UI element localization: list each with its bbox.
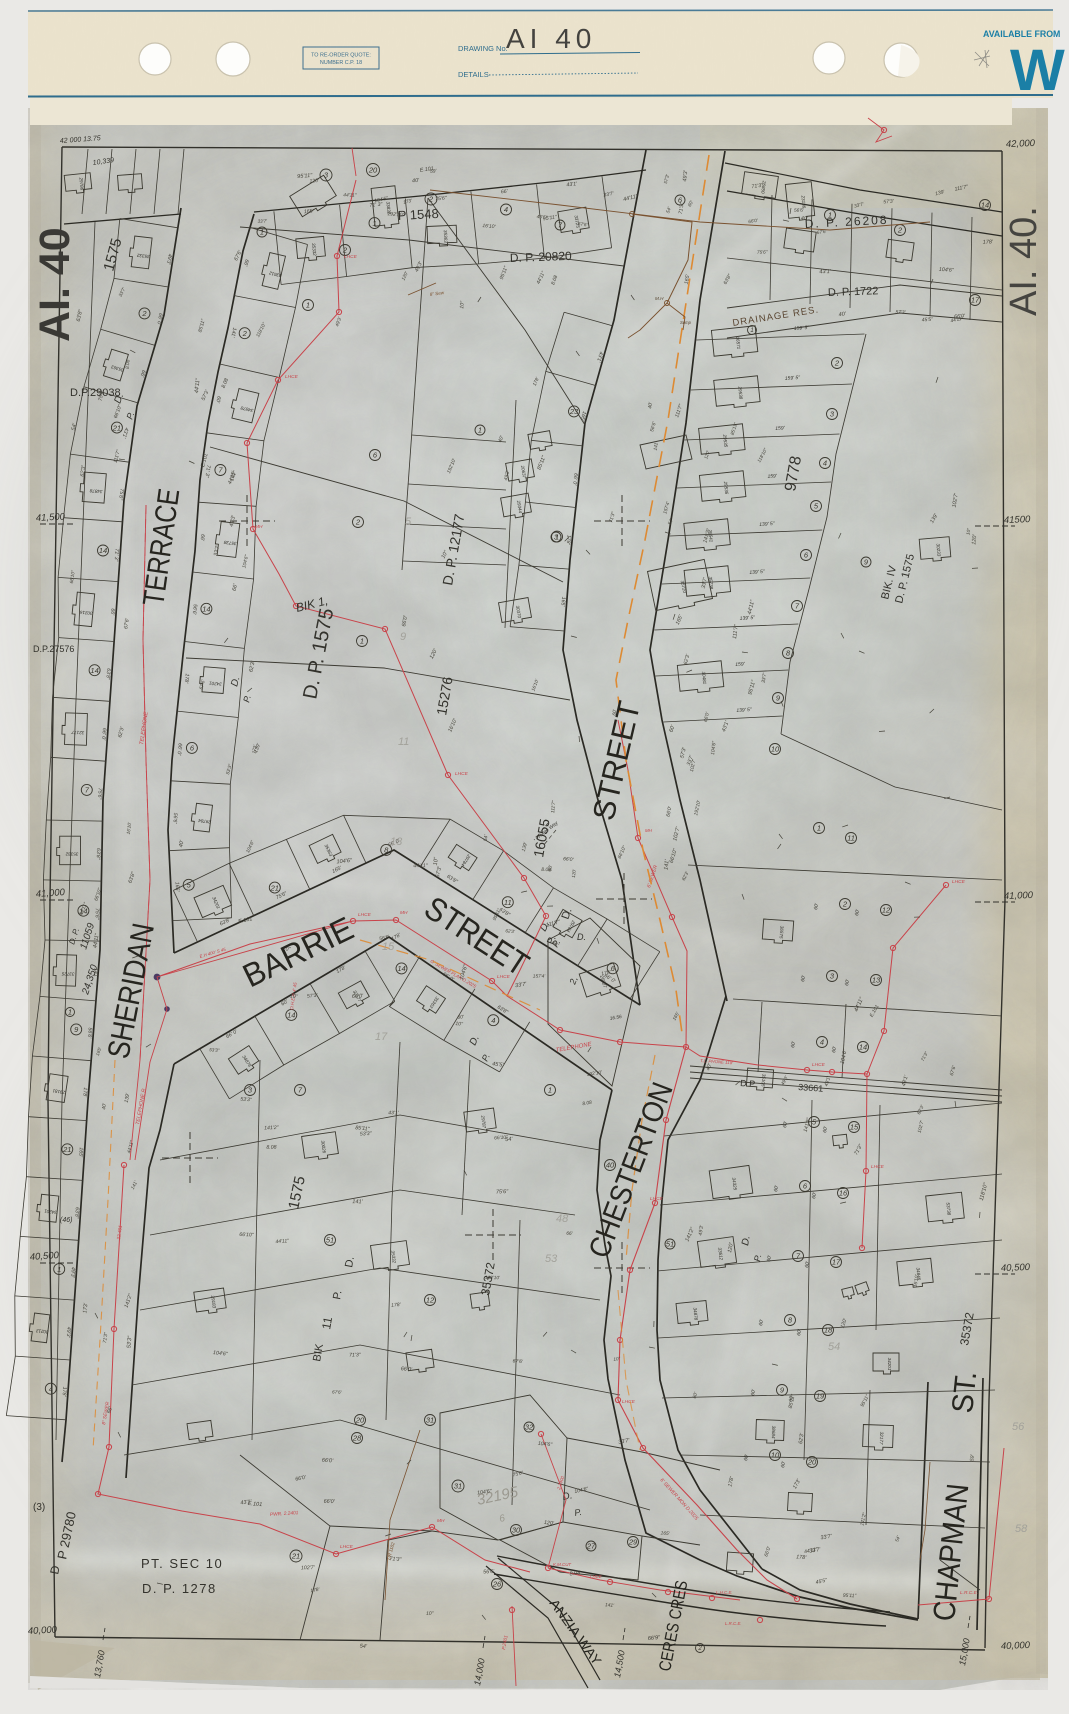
svg-text:MH: MH bbox=[437, 1518, 445, 1524]
svg-text:43'1': 43'1' bbox=[388, 1110, 399, 1116]
svg-text:28: 28 bbox=[352, 1434, 362, 1443]
svg-text:54: 54 bbox=[828, 1341, 840, 1353]
svg-text:21: 21 bbox=[291, 1552, 300, 1561]
svg-text:38684: 38684 bbox=[771, 1426, 776, 1439]
svg-text:LHCE: LHCE bbox=[812, 1062, 826, 1068]
svg-text:AI 40: AI 40 bbox=[506, 23, 596, 54]
svg-text:14: 14 bbox=[859, 1043, 867, 1052]
svg-text:AI. 40.: AI. 40. bbox=[1003, 206, 1045, 316]
svg-text:10": 10" bbox=[613, 1356, 621, 1362]
svg-text:30: 30 bbox=[512, 1526, 521, 1535]
svg-text:75'6": 75'6" bbox=[94, 908, 100, 921]
svg-text:1: 1 bbox=[260, 228, 264, 237]
svg-text:LHCE: LHCE bbox=[650, 1196, 664, 1202]
svg-text:P 1548: P 1548 bbox=[397, 206, 439, 223]
svg-text:10": 10" bbox=[426, 1611, 434, 1617]
svg-text:MH: MH bbox=[255, 524, 263, 530]
svg-text:1: 1 bbox=[306, 301, 310, 310]
svg-text:75'6": 75'6" bbox=[496, 1189, 509, 1195]
svg-text:54': 54' bbox=[359, 1644, 368, 1651]
svg-text:11: 11 bbox=[504, 898, 512, 907]
svg-text:71'3": 71'3" bbox=[349, 1352, 362, 1358]
svg-text:159': 159' bbox=[735, 661, 746, 668]
svg-text:157'4': 157'4' bbox=[533, 974, 547, 980]
svg-text:95'11": 95'11" bbox=[843, 1593, 857, 1599]
svg-text:L.R.C.E.: L.R.C.E. bbox=[725, 1621, 742, 1626]
svg-text:LHCE: LHCE bbox=[344, 254, 358, 260]
svg-text:D.: D. bbox=[343, 1256, 357, 1269]
svg-text:16: 16 bbox=[839, 1189, 848, 1198]
svg-text:67'6': 67'6' bbox=[332, 1389, 343, 1394]
svg-text:4: 4 bbox=[491, 1016, 495, 1025]
svg-text:41,000: 41,000 bbox=[35, 887, 65, 900]
svg-text:66'0': 66'0' bbox=[322, 1458, 335, 1465]
svg-text:14: 14 bbox=[90, 666, 98, 675]
svg-text:4: 4 bbox=[823, 459, 827, 468]
svg-text:41500: 41500 bbox=[1004, 514, 1032, 526]
svg-text:14: 14 bbox=[202, 605, 210, 614]
svg-text:LHCE: LHCE bbox=[622, 1399, 636, 1405]
svg-text:21: 21 bbox=[270, 883, 279, 892]
svg-text:53'3": 53'3" bbox=[209, 1047, 220, 1053]
svg-text:D P: D P bbox=[740, 1078, 756, 1089]
svg-text:49'3': 49'3' bbox=[69, 1267, 76, 1279]
svg-text:2: 2 bbox=[342, 246, 348, 255]
svg-text:PT. SEC 10: PT. SEC 10 bbox=[141, 1556, 223, 1571]
svg-text:1: 1 bbox=[817, 824, 821, 833]
svg-text:11: 11 bbox=[847, 834, 855, 843]
svg-text:44'11": 44'11" bbox=[343, 192, 357, 198]
svg-text:4: 4 bbox=[504, 205, 508, 214]
svg-text:(46): (46) bbox=[60, 1217, 72, 1224]
svg-text:ST.: ST. bbox=[946, 1370, 983, 1415]
svg-text:26: 26 bbox=[492, 1580, 502, 1589]
svg-text:111'7": 111'7" bbox=[550, 800, 557, 813]
svg-text:178': 178' bbox=[81, 1087, 88, 1098]
svg-text:LHCE: LHCE bbox=[590, 1574, 602, 1579]
svg-text:40,500: 40,500 bbox=[1001, 1262, 1031, 1274]
svg-text:LHCE: LHCE bbox=[952, 879, 966, 885]
svg-text:51: 51 bbox=[326, 1236, 334, 1245]
svg-text:27: 27 bbox=[586, 1542, 596, 1551]
svg-text:56'6': 56'6' bbox=[86, 1027, 93, 1039]
svg-text:66'0': 66'0' bbox=[400, 1366, 413, 1373]
svg-text:4: 4 bbox=[820, 1038, 824, 1047]
svg-text:159': 159' bbox=[767, 473, 778, 480]
svg-text:19: 19 bbox=[816, 1392, 825, 1401]
svg-text:35105: 35105 bbox=[761, 1074, 767, 1088]
svg-text:LHCE: LHCE bbox=[871, 1164, 885, 1170]
svg-text:56'6': 56'6' bbox=[483, 1569, 495, 1576]
svg-text:36575: 36575 bbox=[779, 926, 785, 940]
svg-text:33661: 33661 bbox=[798, 1082, 824, 1094]
svg-text:2: 2 bbox=[697, 1646, 702, 1652]
svg-text:66'0': 66'0' bbox=[324, 1499, 336, 1505]
svg-text:120': 120' bbox=[971, 533, 978, 545]
svg-text:58: 58 bbox=[1015, 1523, 1028, 1535]
svg-text:8.08: 8.08 bbox=[266, 1145, 276, 1151]
svg-text:139' 5": 139' 5" bbox=[759, 521, 775, 528]
svg-text:12: 12 bbox=[426, 1296, 435, 1305]
svg-text:LHCE: LHCE bbox=[358, 912, 372, 918]
svg-text:1: 1 bbox=[750, 328, 753, 334]
svg-text:33'7': 33'7' bbox=[257, 219, 267, 224]
svg-text:E.101: E.101 bbox=[247, 1501, 262, 1508]
svg-text:31: 31 bbox=[426, 1416, 434, 1425]
svg-text:32177: 32177 bbox=[879, 1432, 884, 1445]
svg-text:42,000: 42,000 bbox=[1006, 138, 1036, 150]
svg-text:D.P.29038: D.P.29038 bbox=[70, 387, 121, 399]
svg-text:13: 13 bbox=[390, 836, 403, 848]
svg-text:(3): (3) bbox=[33, 1502, 45, 1513]
svg-text:34201: 34201 bbox=[208, 681, 222, 687]
svg-text:10: 10 bbox=[771, 1451, 780, 1460]
svg-text:41,500: 41,500 bbox=[36, 511, 66, 524]
svg-text:11: 11 bbox=[398, 736, 409, 748]
svg-text:21: 21 bbox=[112, 423, 121, 432]
svg-text:41,000: 41,000 bbox=[1004, 890, 1034, 902]
svg-text:13: 13 bbox=[872, 976, 881, 985]
svg-text:139' 5": 139' 5" bbox=[736, 707, 752, 714]
svg-text:LHCE: LHCE bbox=[455, 771, 469, 777]
svg-text:66'10": 66'10" bbox=[239, 1232, 255, 1239]
svg-text:178': 178' bbox=[391, 1302, 402, 1309]
svg-text:49'3': 49'3' bbox=[682, 169, 689, 182]
svg-text:71'3": 71'3" bbox=[389, 1556, 402, 1563]
svg-text:173': 173' bbox=[82, 1302, 89, 1314]
svg-text:5: 5 bbox=[405, 516, 412, 528]
svg-text:53'3": 53'3" bbox=[126, 1335, 133, 1349]
svg-text:D. P. 20820: D. P. 20820 bbox=[510, 249, 573, 265]
svg-text:D.: D. bbox=[740, 1235, 753, 1247]
svg-text:178': 178' bbox=[796, 1554, 808, 1561]
svg-text:35363: 35363 bbox=[443, 230, 449, 243]
svg-text:23: 23 bbox=[569, 407, 579, 416]
svg-text:9: 9 bbox=[400, 631, 406, 643]
svg-text:31: 31 bbox=[454, 1482, 462, 1491]
svg-text:57'3': 57'3' bbox=[895, 309, 906, 315]
svg-text:AI. 40: AI. 40 bbox=[31, 227, 79, 342]
svg-text:D. P. 1722: D. P. 1722 bbox=[828, 285, 879, 299]
svg-text:165': 165' bbox=[559, 596, 566, 607]
svg-text:17: 17 bbox=[832, 1258, 841, 1267]
svg-text:20: 20 bbox=[368, 166, 378, 175]
svg-text:15: 15 bbox=[382, 941, 395, 953]
svg-text:141': 141' bbox=[605, 1602, 616, 1609]
svg-text:32: 32 bbox=[525, 1423, 534, 1432]
svg-text:141': 141' bbox=[352, 1199, 363, 1205]
svg-text:14: 14 bbox=[981, 201, 989, 210]
svg-text:53: 53 bbox=[545, 1253, 558, 1265]
svg-text:2: 2 bbox=[897, 226, 903, 235]
svg-text:165': 165' bbox=[77, 1147, 84, 1158]
svg-text:4: 4 bbox=[49, 1384, 53, 1393]
svg-text:2: 2 bbox=[355, 518, 361, 527]
svg-text:1: 1 bbox=[68, 1008, 72, 1017]
svg-text:10: 10 bbox=[771, 745, 780, 754]
svg-text:33725: 33725 bbox=[61, 971, 74, 976]
svg-text:102'7': 102'7' bbox=[301, 1565, 316, 1571]
svg-text:35332: 35332 bbox=[65, 851, 78, 856]
svg-text:D.: D. bbox=[577, 932, 586, 942]
svg-text:56'6': 56'6' bbox=[171, 812, 178, 824]
svg-text:2: 2 bbox=[428, 195, 434, 204]
svg-text:17: 17 bbox=[971, 296, 980, 305]
svg-text:LHCE: LHCE bbox=[340, 1544, 354, 1550]
svg-text:14: 14 bbox=[397, 964, 405, 973]
svg-text:165': 165' bbox=[304, 208, 315, 215]
svg-text:66'9": 66'9" bbox=[648, 1635, 662, 1642]
svg-text:LHCE: LHCE bbox=[285, 374, 299, 380]
svg-text:178': 178' bbox=[61, 1386, 68, 1397]
svg-text:14: 14 bbox=[287, 1011, 295, 1020]
svg-text:56'6': 56'6' bbox=[794, 208, 805, 214]
svg-text:66'0': 66'0' bbox=[954, 313, 966, 320]
svg-text:120': 120' bbox=[543, 1520, 555, 1527]
svg-text:159' 5": 159' 5" bbox=[785, 375, 801, 382]
svg-text:63'8": 63'8" bbox=[104, 668, 111, 681]
svg-text:NUMBER C.P. 18: NUMBER C.P. 18 bbox=[320, 60, 362, 66]
svg-text:53'3": 53'3" bbox=[240, 1097, 253, 1104]
svg-text:1: 1 bbox=[548, 1086, 552, 1095]
svg-text:21: 21 bbox=[62, 1145, 71, 1154]
svg-text:34201: 34201 bbox=[887, 1358, 892, 1371]
svg-text:W: W bbox=[1010, 38, 1065, 103]
svg-text:M.H: M.H bbox=[655, 296, 664, 301]
svg-text:40,500: 40,500 bbox=[29, 1250, 59, 1263]
svg-text:67'6': 67'6' bbox=[512, 1358, 524, 1365]
svg-text:2: 2 bbox=[141, 309, 147, 318]
svg-text:75'6": 75'6" bbox=[757, 249, 768, 255]
svg-text:159': 159' bbox=[775, 425, 786, 432]
svg-text:139' 5": 139' 5" bbox=[749, 569, 765, 576]
svg-text:D. P. 1278: D. P. 1278 bbox=[142, 1581, 217, 1596]
svg-text:Sump: Sump bbox=[680, 320, 692, 325]
svg-text:66'0': 66'0' bbox=[352, 993, 365, 1000]
svg-text:66' 0': 66' 0' bbox=[100, 728, 107, 741]
svg-text:44'11": 44'11" bbox=[413, 863, 428, 869]
svg-text:40,000: 40,000 bbox=[1001, 1640, 1031, 1652]
svg-text:75'6": 75'6" bbox=[435, 195, 448, 202]
svg-text:75'6": 75'6" bbox=[96, 788, 103, 801]
svg-text:1: 1 bbox=[372, 219, 376, 228]
svg-text:L.H.C.E.: L.H.C.E. bbox=[716, 1590, 733, 1595]
svg-text:20: 20 bbox=[807, 1458, 817, 1467]
svg-text:139' 5": 139' 5" bbox=[740, 615, 756, 622]
svg-text:104'6": 104'6" bbox=[939, 267, 955, 274]
svg-text:44'11": 44'11" bbox=[275, 1238, 289, 1245]
svg-text:D.P.27576: D.P.27576 bbox=[33, 644, 74, 654]
svg-text:178': 178' bbox=[983, 239, 994, 245]
svg-text:56: 56 bbox=[1012, 1421, 1025, 1433]
svg-text:14: 14 bbox=[99, 546, 107, 555]
svg-text:51: 51 bbox=[666, 1240, 674, 1249]
svg-text:141'2": 141'2" bbox=[264, 1125, 280, 1132]
svg-text:45'5": 45'5" bbox=[536, 214, 547, 221]
svg-text:DETAILS: DETAILS bbox=[458, 70, 489, 79]
svg-text:34878: 34878 bbox=[89, 488, 103, 494]
svg-text:29: 29 bbox=[628, 1538, 638, 1547]
svg-text:71' 3": 71' 3" bbox=[113, 548, 120, 562]
svg-text:MH: MH bbox=[400, 910, 408, 916]
svg-text:18: 18 bbox=[824, 1326, 833, 1335]
svg-text:DRAWING No.: DRAWING No. bbox=[458, 44, 508, 53]
svg-text:63'8": 63'8" bbox=[73, 1207, 80, 1220]
svg-text:66'0': 66'0' bbox=[563, 856, 575, 863]
svg-text:1: 1 bbox=[478, 426, 482, 435]
svg-text:K.M.CUT: K.M.CUT bbox=[553, 1562, 571, 1567]
svg-text:40,000: 40,000 bbox=[28, 1624, 58, 1637]
svg-text:12: 12 bbox=[882, 906, 891, 915]
svg-text:2: 2 bbox=[842, 900, 848, 909]
svg-text:43'1': 43'1' bbox=[566, 181, 578, 188]
svg-text:57'3': 57'3' bbox=[883, 198, 895, 205]
svg-text:57'3': 57'3' bbox=[307, 993, 319, 1000]
svg-text:MH: MH bbox=[645, 828, 653, 833]
svg-text:32177: 32177 bbox=[71, 730, 84, 735]
svg-text:45'5": 45'5" bbox=[922, 317, 934, 324]
svg-text:8.08: 8.08 bbox=[125, 359, 132, 369]
svg-text:178': 178' bbox=[183, 673, 190, 684]
svg-text:165': 165' bbox=[660, 1530, 671, 1537]
svg-text:1: 1 bbox=[360, 637, 364, 646]
svg-text:63'8": 63'8" bbox=[95, 848, 101, 861]
svg-text:43'1': 43'1' bbox=[819, 269, 831, 275]
svg-text:TO RE-ORDER QUOTE:: TO RE-ORDER QUOTE: bbox=[311, 53, 371, 59]
svg-text:49'3': 49'3' bbox=[65, 1327, 72, 1339]
svg-text:15: 15 bbox=[850, 1123, 859, 1132]
svg-text:2: 2 bbox=[242, 329, 248, 338]
svg-text:17: 17 bbox=[375, 1031, 388, 1043]
svg-text:2: 2 bbox=[834, 359, 840, 368]
svg-text:20: 20 bbox=[355, 1416, 365, 1425]
svg-text:120': 120' bbox=[309, 178, 320, 185]
svg-text:48: 48 bbox=[556, 1213, 569, 1225]
